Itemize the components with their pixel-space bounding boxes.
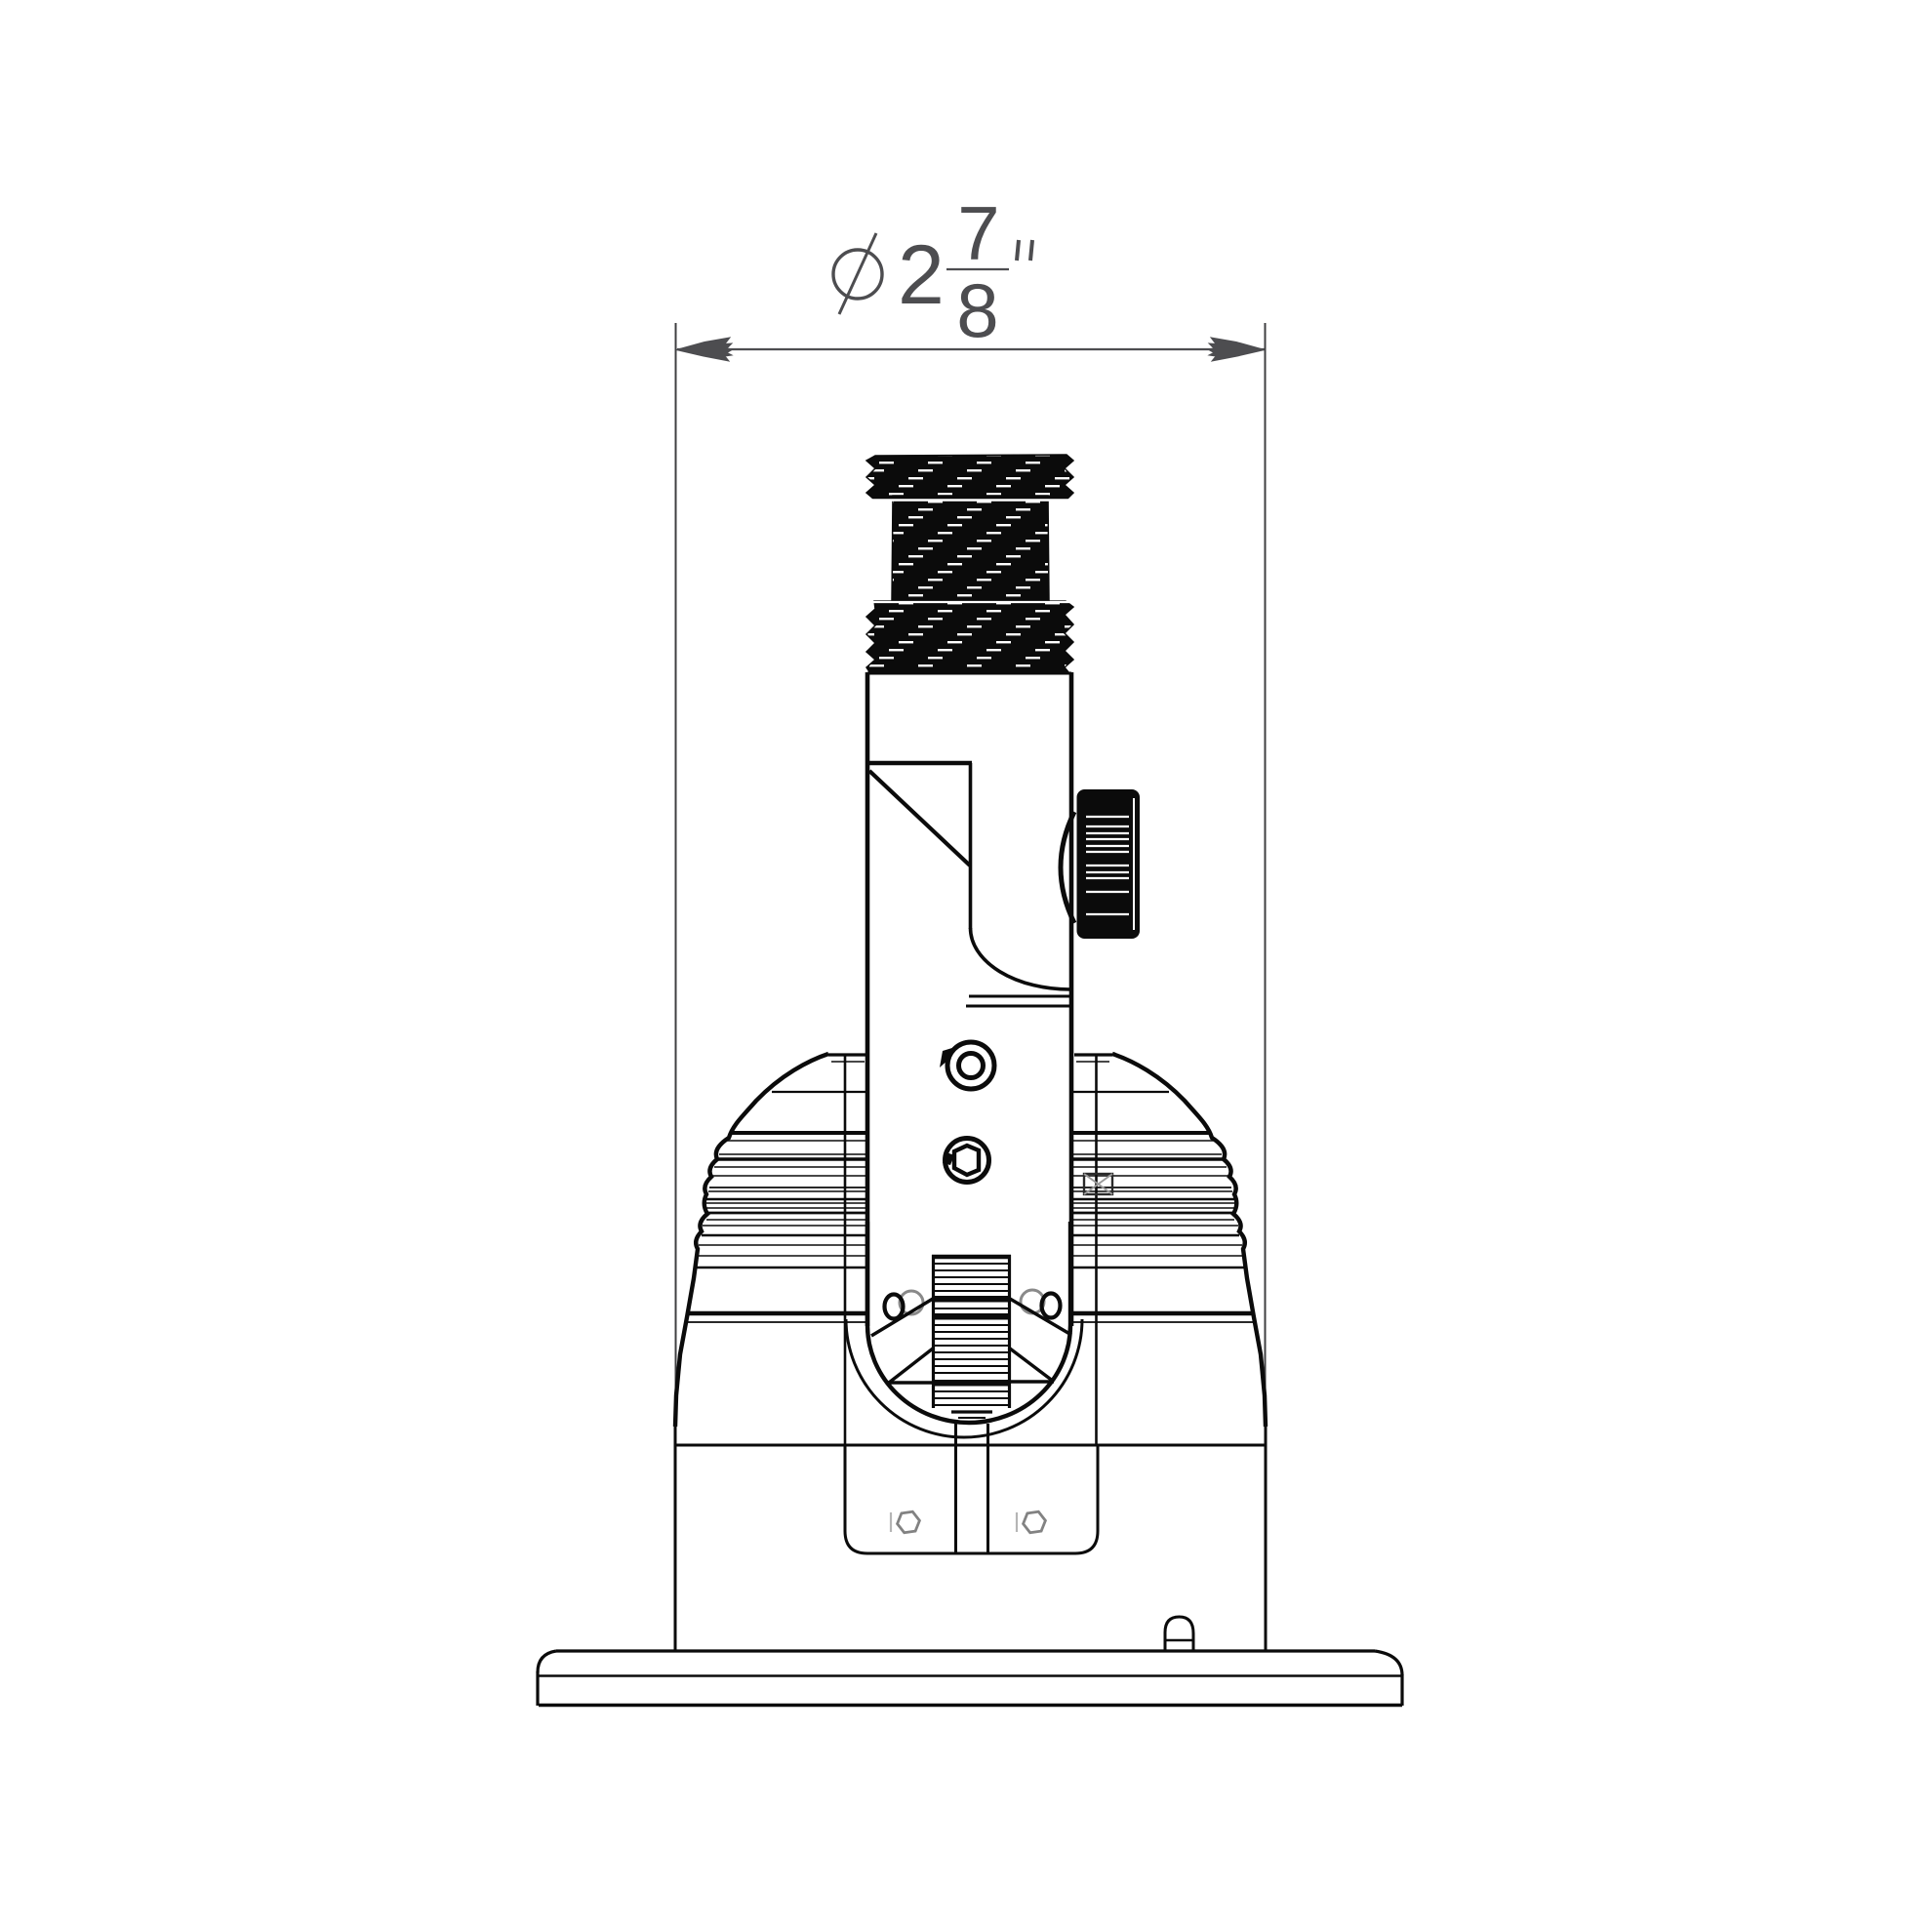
svg-text:2: 2 xyxy=(898,228,945,322)
svg-text:8: 8 xyxy=(956,267,998,353)
svg-text:7: 7 xyxy=(957,190,999,276)
